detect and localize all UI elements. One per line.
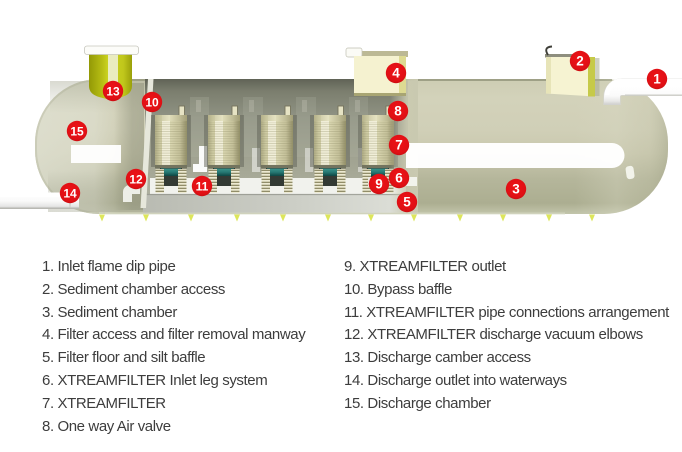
- svg-text:5: 5: [403, 195, 411, 210]
- svg-text:7: 7: [395, 138, 403, 153]
- svg-text:2: 2: [576, 54, 584, 69]
- svg-text:8: 8: [394, 104, 402, 119]
- svg-text:9: 9: [375, 177, 383, 192]
- svg-text:12: 12: [129, 173, 143, 187]
- svg-text:4: 4: [392, 66, 400, 81]
- svg-text:6: 6: [395, 171, 403, 186]
- svg-text:1: 1: [653, 72, 661, 87]
- svg-text:15: 15: [70, 125, 84, 139]
- svg-text:10: 10: [145, 96, 159, 110]
- svg-text:3: 3: [512, 182, 520, 197]
- svg-text:14: 14: [63, 187, 77, 201]
- svg-text:11: 11: [196, 180, 209, 194]
- svg-text:13: 13: [106, 85, 120, 99]
